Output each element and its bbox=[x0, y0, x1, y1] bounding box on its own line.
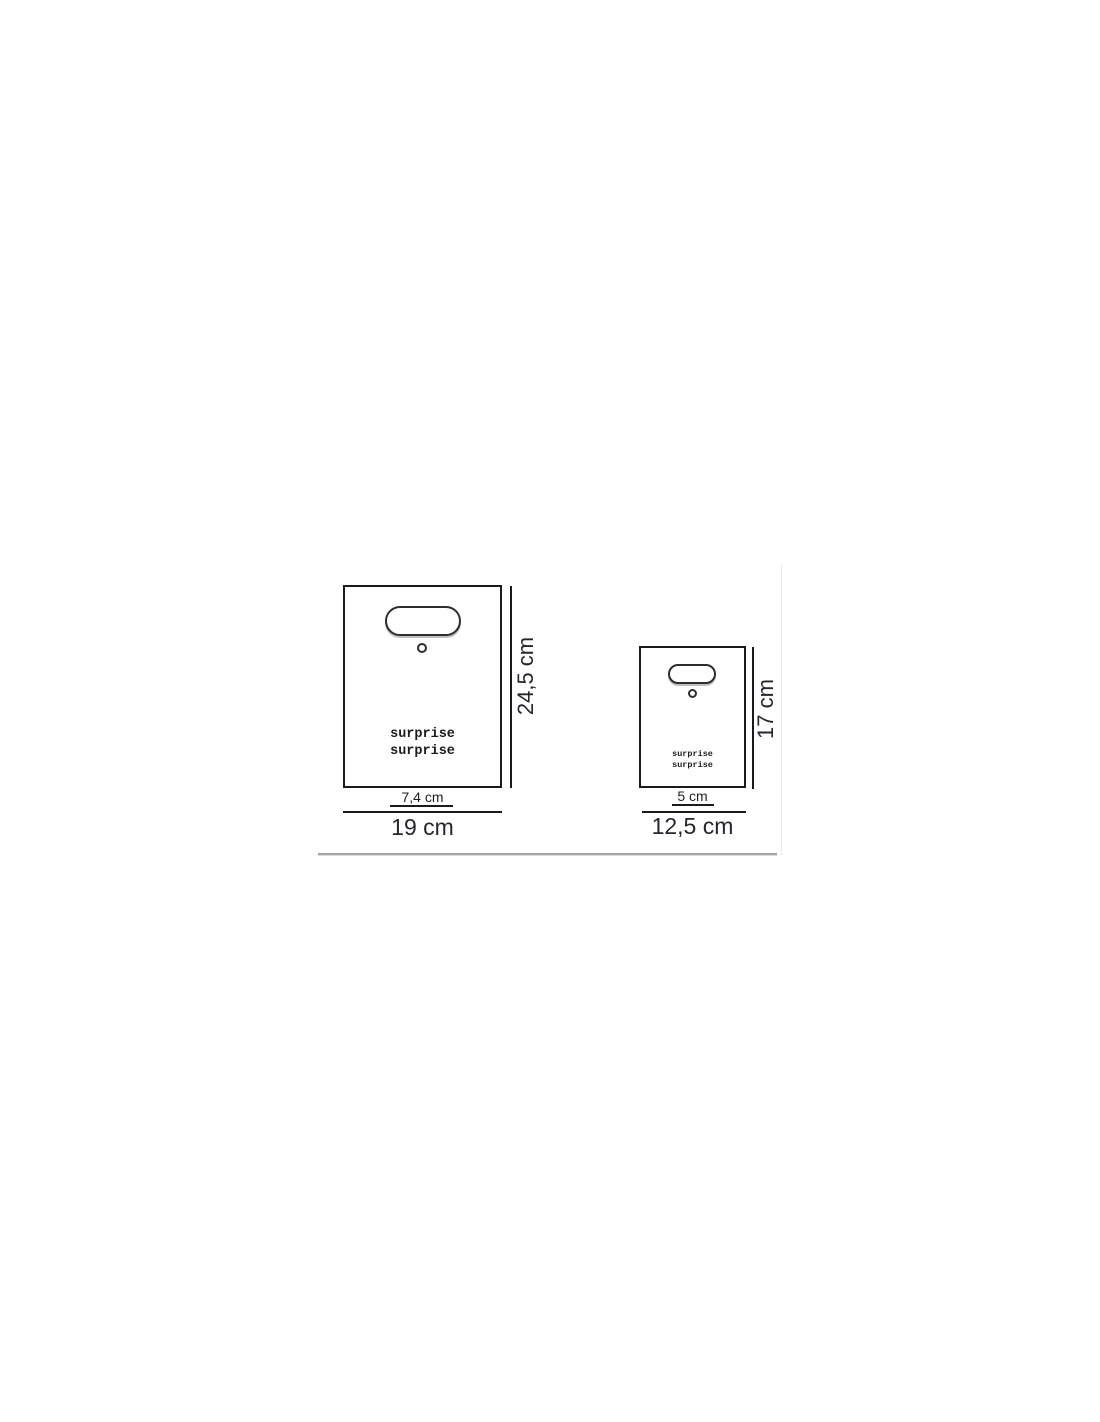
dimension-diagram: surprise surprise 24,5 cm 7,4 cm 19 cm s… bbox=[0, 0, 1100, 1422]
small-bag-height-label: 17 cm bbox=[753, 679, 779, 739]
large-bag-height-dimension-line bbox=[510, 586, 512, 788]
large-bag-handle-width-label: 7,4 cm bbox=[343, 789, 502, 805]
column-edge-line bbox=[781, 565, 782, 855]
large-bag-width-dimension-line bbox=[343, 811, 502, 813]
large-bag-width-label: 19 cm bbox=[343, 814, 502, 841]
content-divider-line bbox=[318, 853, 777, 856]
print-line: surprise bbox=[639, 760, 746, 771]
large-bag-height-label: 24,5 cm bbox=[513, 637, 539, 715]
large-bag-string-hole bbox=[417, 643, 427, 653]
small-bag-handle-width-underline bbox=[672, 804, 714, 806]
small-bag-handle-cutout bbox=[668, 664, 716, 684]
print-line: surprise bbox=[639, 749, 746, 760]
print-line: surprise bbox=[343, 744, 502, 761]
print-line: surprise bbox=[343, 727, 502, 744]
small-bag-string-hole bbox=[688, 689, 697, 698]
small-bag-print-text: surprise surprise bbox=[639, 749, 746, 770]
small-bag-width-label: 12,5 cm bbox=[639, 813, 746, 840]
small-bag-handle-width-label: 5 cm bbox=[639, 788, 746, 804]
large-bag-handle-width-underline bbox=[390, 805, 453, 807]
large-bag-print-text: surprise surprise bbox=[343, 727, 502, 760]
large-bag-handle-cutout bbox=[385, 606, 461, 636]
